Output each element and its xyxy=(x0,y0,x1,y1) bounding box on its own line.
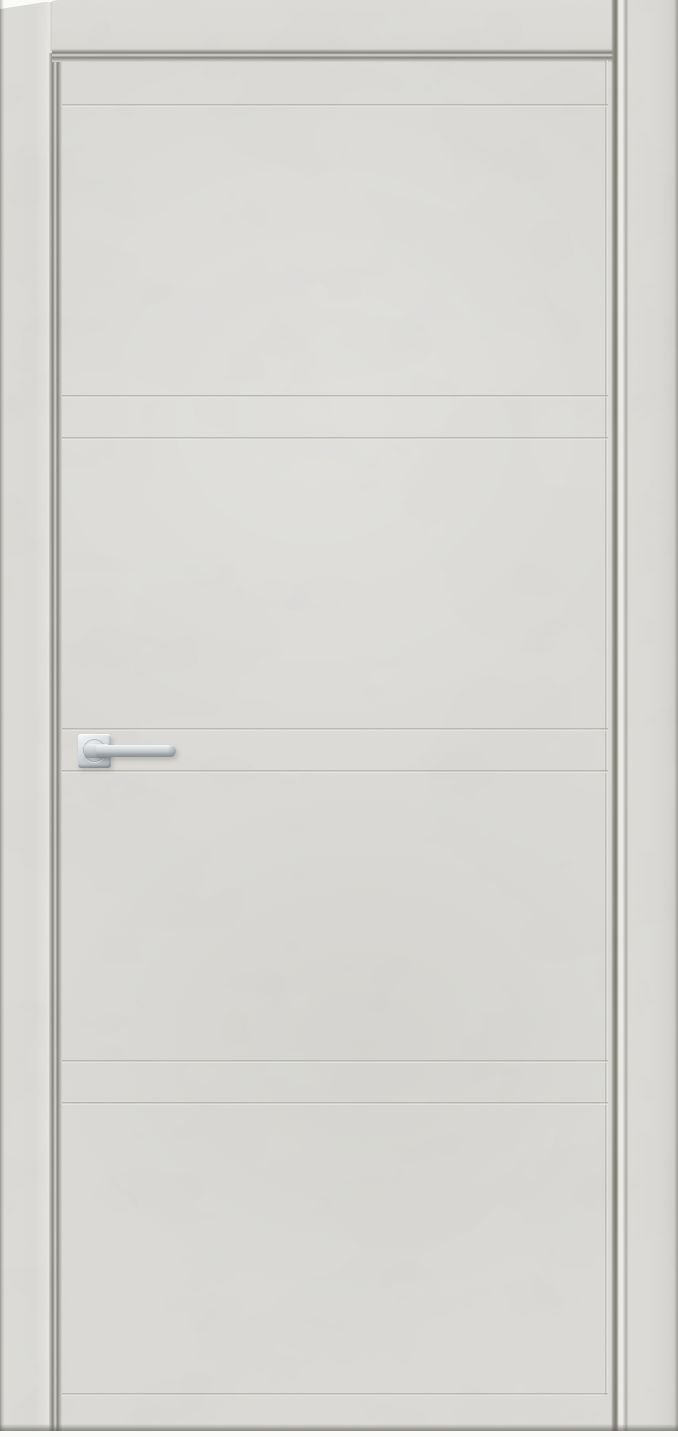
horizontal-groove xyxy=(62,1102,608,1105)
horizontal-groove xyxy=(62,728,608,731)
horizontal-groove xyxy=(62,437,608,440)
leaf-left-seam xyxy=(49,53,62,1431)
door-product-photo xyxy=(0,0,678,1437)
door-frame-header xyxy=(52,0,624,53)
horizontal-groove xyxy=(62,395,608,398)
door-frame-right-jamb xyxy=(624,0,678,1431)
left-edge-shadow xyxy=(0,0,4,1431)
door-leaf-sheen xyxy=(56,56,615,1431)
leaf-right-seam xyxy=(611,0,628,1431)
horizontal-groove xyxy=(62,1060,608,1063)
leaf-top-seam xyxy=(52,49,624,62)
horizontal-groove xyxy=(62,1393,608,1396)
photo-top-left-background-wedge xyxy=(0,0,58,9)
right-edge-shadow xyxy=(674,0,678,1431)
door-handle-lever xyxy=(96,745,176,757)
photo-bottom-background-strip xyxy=(0,1431,678,1437)
horizontal-groove xyxy=(62,770,608,773)
horizontal-groove xyxy=(62,104,608,107)
door-frame-left-jamb xyxy=(0,2,52,1431)
